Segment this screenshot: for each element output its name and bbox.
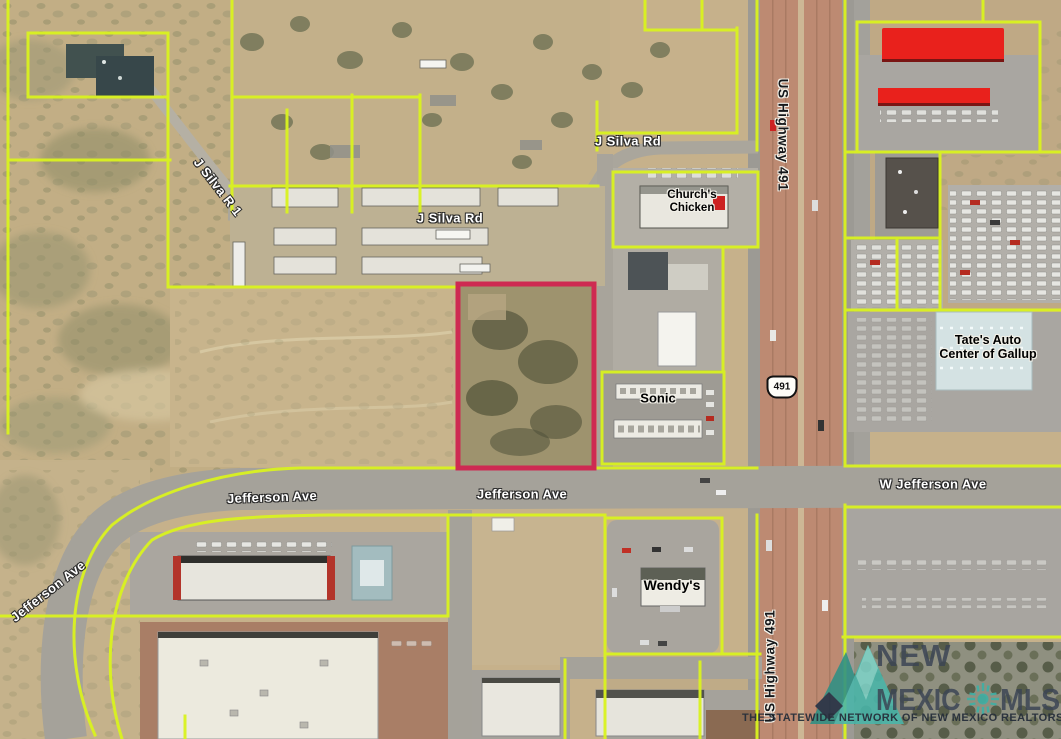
business-label-wendys: Wendy's	[644, 578, 701, 594]
road-label-us-highway-491-upper: US Highway 491	[776, 79, 791, 192]
teal-building	[352, 546, 392, 600]
road-label-w-jefferson-ave: W Jefferson Ave	[880, 477, 987, 492]
highlight-parcel-brush	[460, 286, 592, 466]
road-label-jefferson-ave-center: Jefferson Ave	[477, 487, 567, 502]
dark-roof-building-right	[886, 158, 938, 228]
business-label-tates-auto: Tate's Auto Center of Gallup	[939, 333, 1036, 361]
big-box-store	[158, 632, 378, 739]
road-label-jefferson-ave-west: Jefferson Ave	[227, 488, 318, 506]
road-label-j-silva-rd-upper: J Silva Rd	[595, 134, 661, 149]
satellite-imagery	[0, 0, 1061, 739]
mls-logo-new: NEW	[876, 640, 951, 671]
road-label-j-silva-rd-lower: J Silva Rd	[417, 211, 483, 226]
road-label-us-highway-491-lower: US Highway 491	[763, 610, 778, 723]
churchs-line2: Chicken	[667, 202, 716, 215]
tates-line1: Tate's Auto	[939, 333, 1036, 347]
mls-logo-mexic: MEXIC	[876, 684, 960, 715]
mls-logo-mls: MLS	[1000, 684, 1060, 715]
us-route-491-shield: 491	[767, 376, 798, 399]
business-label-sonic: Sonic	[640, 392, 675, 407]
satellite-map-view: J Silva Rd J Silva Rd J Silva R 1 Jeffer…	[0, 0, 1061, 739]
business-label-churchs-chicken: Church's Chicken	[667, 189, 716, 215]
churchs-line1: Church's	[667, 189, 716, 202]
strip-mall	[173, 556, 335, 600]
tates-line2: Center of Gallup	[939, 347, 1036, 361]
zia-sun-icon	[966, 682, 1000, 716]
mls-tagline: THE STATEWIDE NETWORK OF NEW MEXICO REAL…	[742, 712, 1061, 724]
